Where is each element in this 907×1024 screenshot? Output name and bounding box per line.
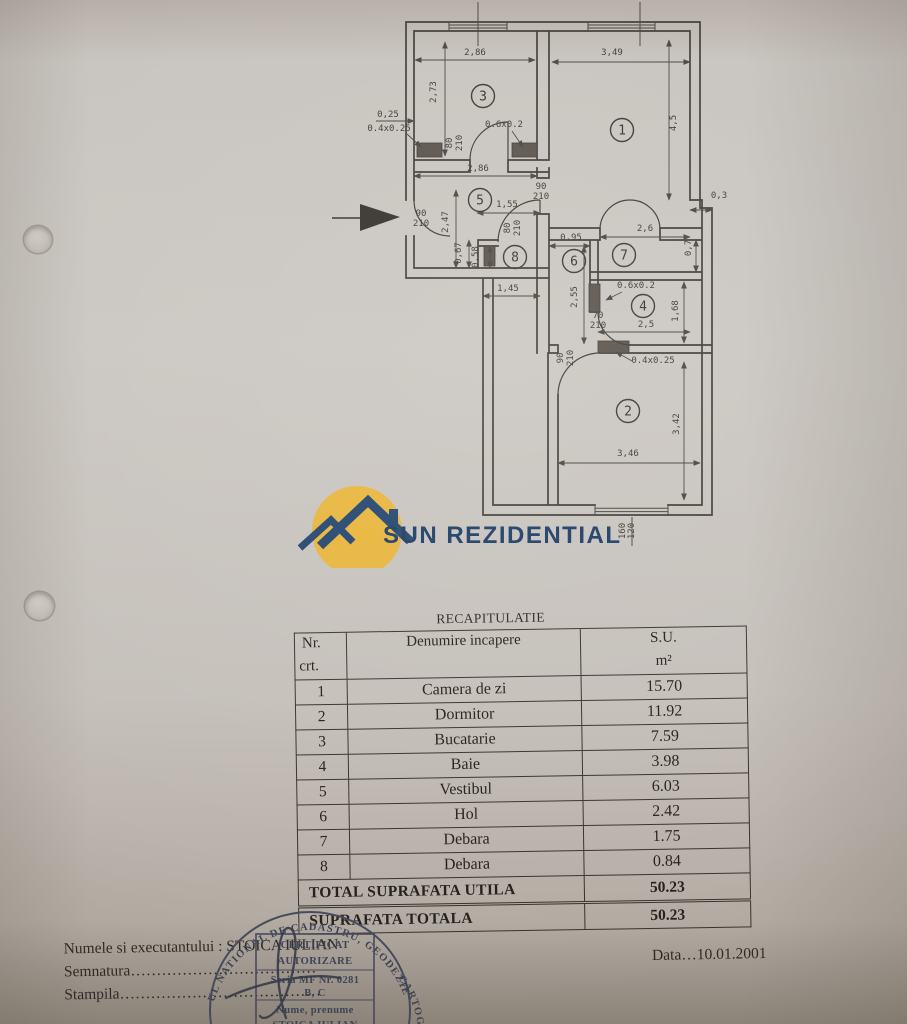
room-number-badge: 1: [611, 119, 634, 142]
stamp-line1: CERTIFICAT: [281, 940, 350, 951]
dimension-label: 0,7: [684, 240, 694, 256]
room-number-badge: 5: [469, 189, 492, 212]
stamp-line6: STOICA IULIAN: [272, 1020, 357, 1024]
dimension-label: 3,42: [672, 413, 682, 435]
date-line: Data…10.01.2001: [652, 945, 767, 965]
dimension-label: 2,6: [637, 224, 653, 234]
svg-text:5: 5: [476, 194, 484, 209]
dimension-lines: [376, 40, 712, 500]
dimension-label: 4,5: [669, 115, 679, 131]
dimension-label: 210: [513, 220, 523, 236]
dimension-label: 1,45: [497, 284, 519, 294]
dimension-label: 80: [445, 138, 455, 149]
room-number-badge: 4: [632, 295, 655, 318]
dimension-label: 90: [536, 182, 547, 192]
dimension-label: 0.6x0.2: [485, 120, 523, 130]
col-header-nr: Nr. crt.: [294, 632, 347, 680]
scanned-cadastral-document: { "logo": { "name": "SUN REZIDENTIAL", "…: [0, 0, 907, 1024]
svg-text:4: 4: [639, 300, 647, 315]
dimension-label: 80: [503, 223, 513, 234]
dimension-label: 90: [556, 353, 566, 364]
room-number-badge: 6: [563, 250, 586, 273]
dimension-label: 90: [416, 209, 427, 219]
dimension-label: 3,46: [617, 449, 639, 459]
dimension-label: 210: [413, 219, 429, 229]
dimension-label: 0.4x0.25: [367, 124, 410, 134]
dimension-label: 3,49: [601, 48, 623, 58]
entrance-arrow: [332, 204, 400, 231]
svg-text:1: 1: [618, 124, 626, 139]
logo-text: SUN REZIDENTIAL: [383, 522, 622, 549]
dimension-label: 0.4x0.25: [631, 356, 674, 366]
dimension-label: 2,86: [464, 48, 486, 58]
certification-stamp: UL NATIONAL DE CADASTRU, GEODEZIE CARTOG…: [190, 898, 430, 1024]
dimension-label: 1,55: [496, 200, 518, 210]
dimension-label: 70: [593, 311, 604, 321]
punch-hole: [24, 226, 52, 253]
room-number-badge: 3: [472, 85, 495, 108]
room-number-badge: 2: [617, 400, 640, 423]
dimension-label: 210: [455, 135, 465, 151]
stamp-line5: Nume, prenume: [276, 1005, 353, 1016]
room-number-badge: 7: [613, 244, 636, 267]
svg-text:6: 6: [570, 255, 578, 270]
room-number-badge: 8: [504, 246, 527, 269]
stamp-line2: AUTORIZARE: [278, 956, 353, 967]
dimension-label: 0,3: [711, 191, 727, 201]
dimension-label: 0,58: [471, 246, 481, 268]
svg-text:8: 8: [511, 251, 519, 266]
dimension-label: 0.6x0.2: [617, 281, 655, 291]
svg-text:7: 7: [620, 249, 628, 264]
recap-table: Nr. crt. Denumire incapere S.U. m² 1Came…: [294, 625, 752, 934]
walls: [406, 22, 712, 515]
dimension-label: 210: [590, 321, 606, 331]
dimension-label: 0,25: [377, 110, 399, 120]
dimension-label: 2,86: [467, 164, 489, 174]
dimension-label: 210: [533, 192, 549, 202]
dimension-label: 1,68: [671, 300, 681, 322]
dimension-label: 2,55: [570, 286, 580, 308]
stamp-ring-text-right: CARTOGR: [396, 973, 427, 1024]
col-header-su: S.U. m²: [580, 626, 747, 676]
recap-section: RECAPITULATIE Nr. crt. Denumire incapere…: [294, 606, 751, 934]
dimension-label: 2,5: [638, 320, 654, 330]
col-header-name: Denumire incapere: [346, 629, 581, 680]
svg-text:2: 2: [624, 405, 632, 420]
dimension-label: 0,67: [454, 242, 464, 264]
dimension-label: 0,95: [560, 233, 582, 243]
dimension-label: 2,47: [441, 211, 451, 233]
floor-plan: 2,863,492,734,50,250.4x0.250.6x0.2802102…: [0, 0, 907, 560]
dimension-label: 210: [566, 350, 576, 366]
recap-body: 1Camera de zi15.702Dormitor11.923Bucatar…: [295, 673, 750, 880]
sun-rezidential-logo: SUN REZIDENTIAL: [280, 478, 640, 568]
svg-text:3: 3: [479, 90, 487, 105]
stamp-line4: B, C: [304, 988, 325, 999]
punch-hole: [25, 592, 54, 620]
dimension-label: 2,73: [429, 81, 439, 103]
